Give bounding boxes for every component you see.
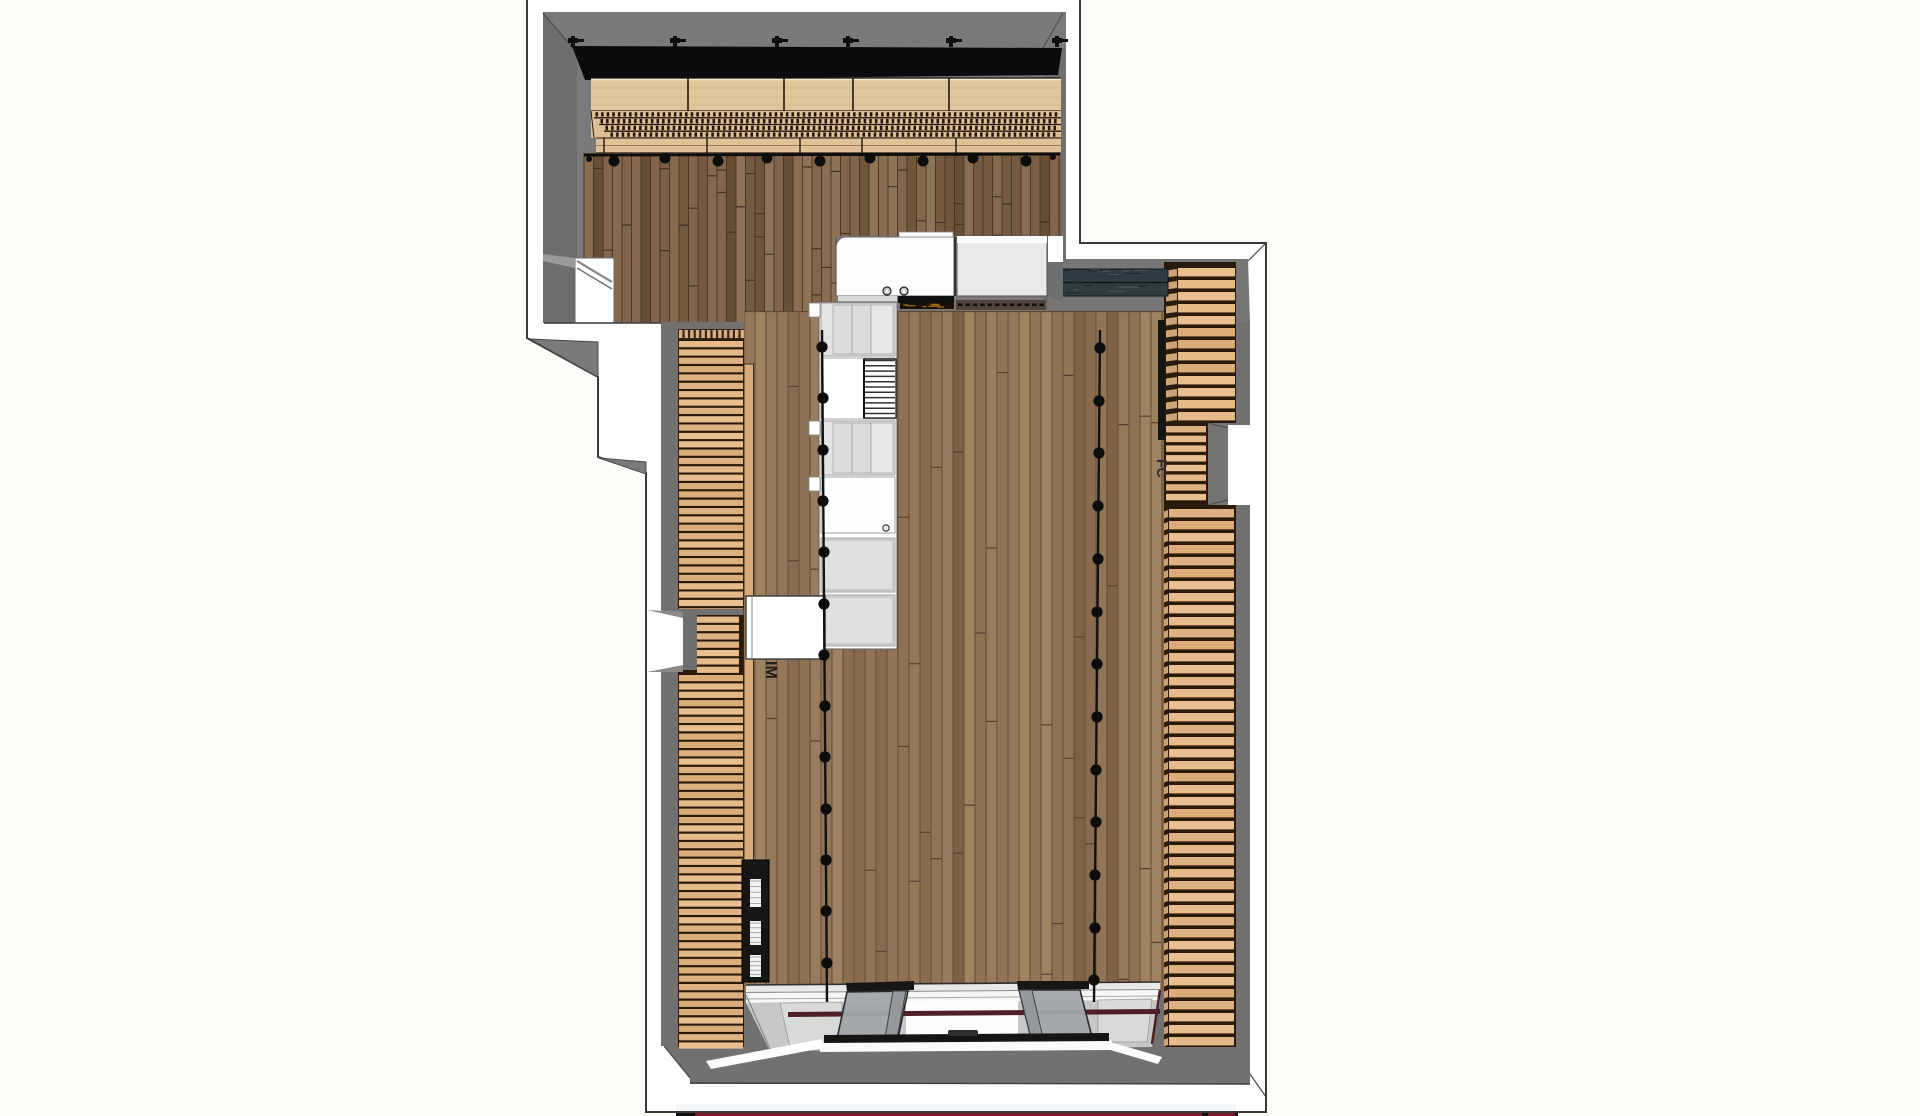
svg-text:FC: FC <box>1154 459 1170 478</box>
svg-text:IM: IM <box>762 661 779 679</box>
